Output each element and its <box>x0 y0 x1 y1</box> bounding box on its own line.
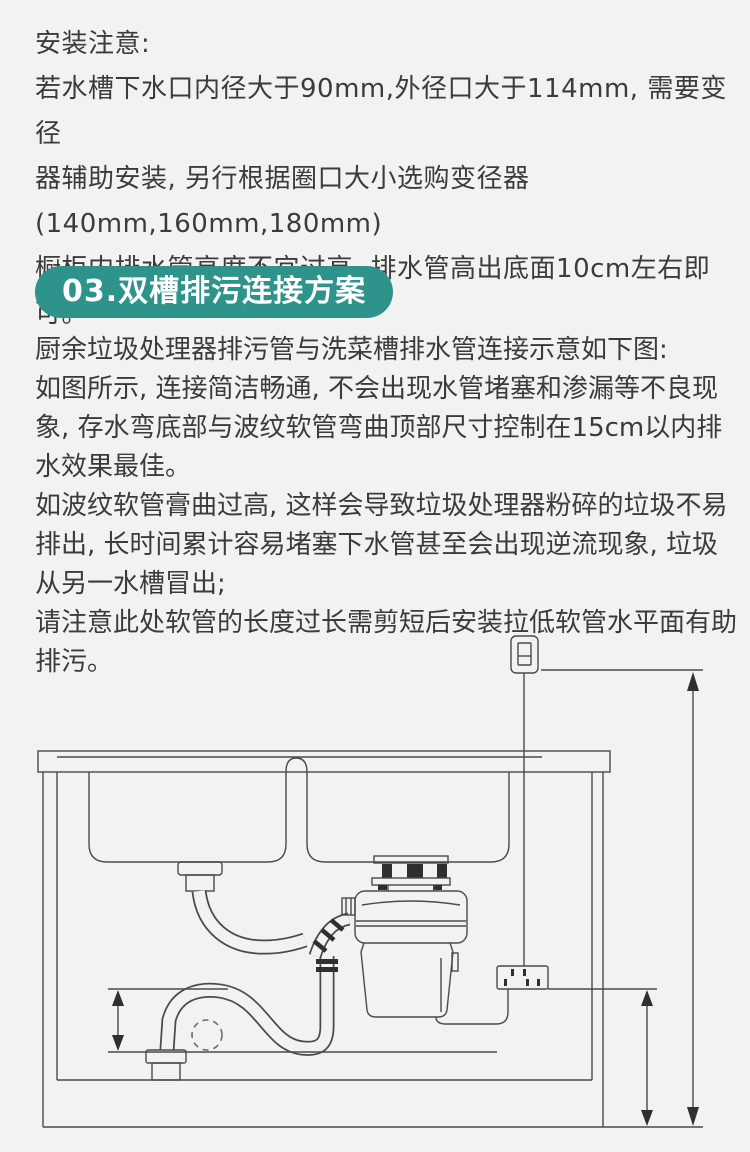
section-badge: 03.双槽排污连接方案 <box>35 266 393 318</box>
paragraph-warning: 如波纹软管膏曲过高, 这样会导致垃圾处理器粉碎的垃圾不易 排出, 长时间累计容易… <box>35 487 747 604</box>
paragraph-intro: 厨余垃圾处理器排污管与洗菜槽排水管连接示意如下图: <box>35 331 747 370</box>
product-instruction-page: 安装注意: 若水槽下水口内径大于90mm,外径口大于114mm, 需要变径 器辅… <box>0 0 750 1152</box>
dimension-120cm <box>687 672 699 1126</box>
wall-drain-fitting <box>146 1050 186 1080</box>
paragraph-good-practice: 如图所示, 连接简洁畅通, 不会出现水管堵塞和渗漏等不良现 象, 存水弯底部与波… <box>35 370 747 487</box>
power-outlet-icon <box>497 966 548 989</box>
dashed-circle-marker <box>192 1020 222 1050</box>
switch-wiring <box>524 670 703 966</box>
sink-cabinet <box>38 751 703 1127</box>
switch-icon <box>511 636 538 673</box>
plumbing-diagram: 预留 开关 预留 电源 波纹管高度 不超过出水口 墙排高度≤15cm 15cm … <box>0 620 750 1152</box>
double-sink-bowls <box>89 758 509 862</box>
plumbing-diagram-art <box>0 620 750 1152</box>
left-drain-hose <box>167 862 327 1050</box>
disposal-unit <box>342 856 508 1024</box>
